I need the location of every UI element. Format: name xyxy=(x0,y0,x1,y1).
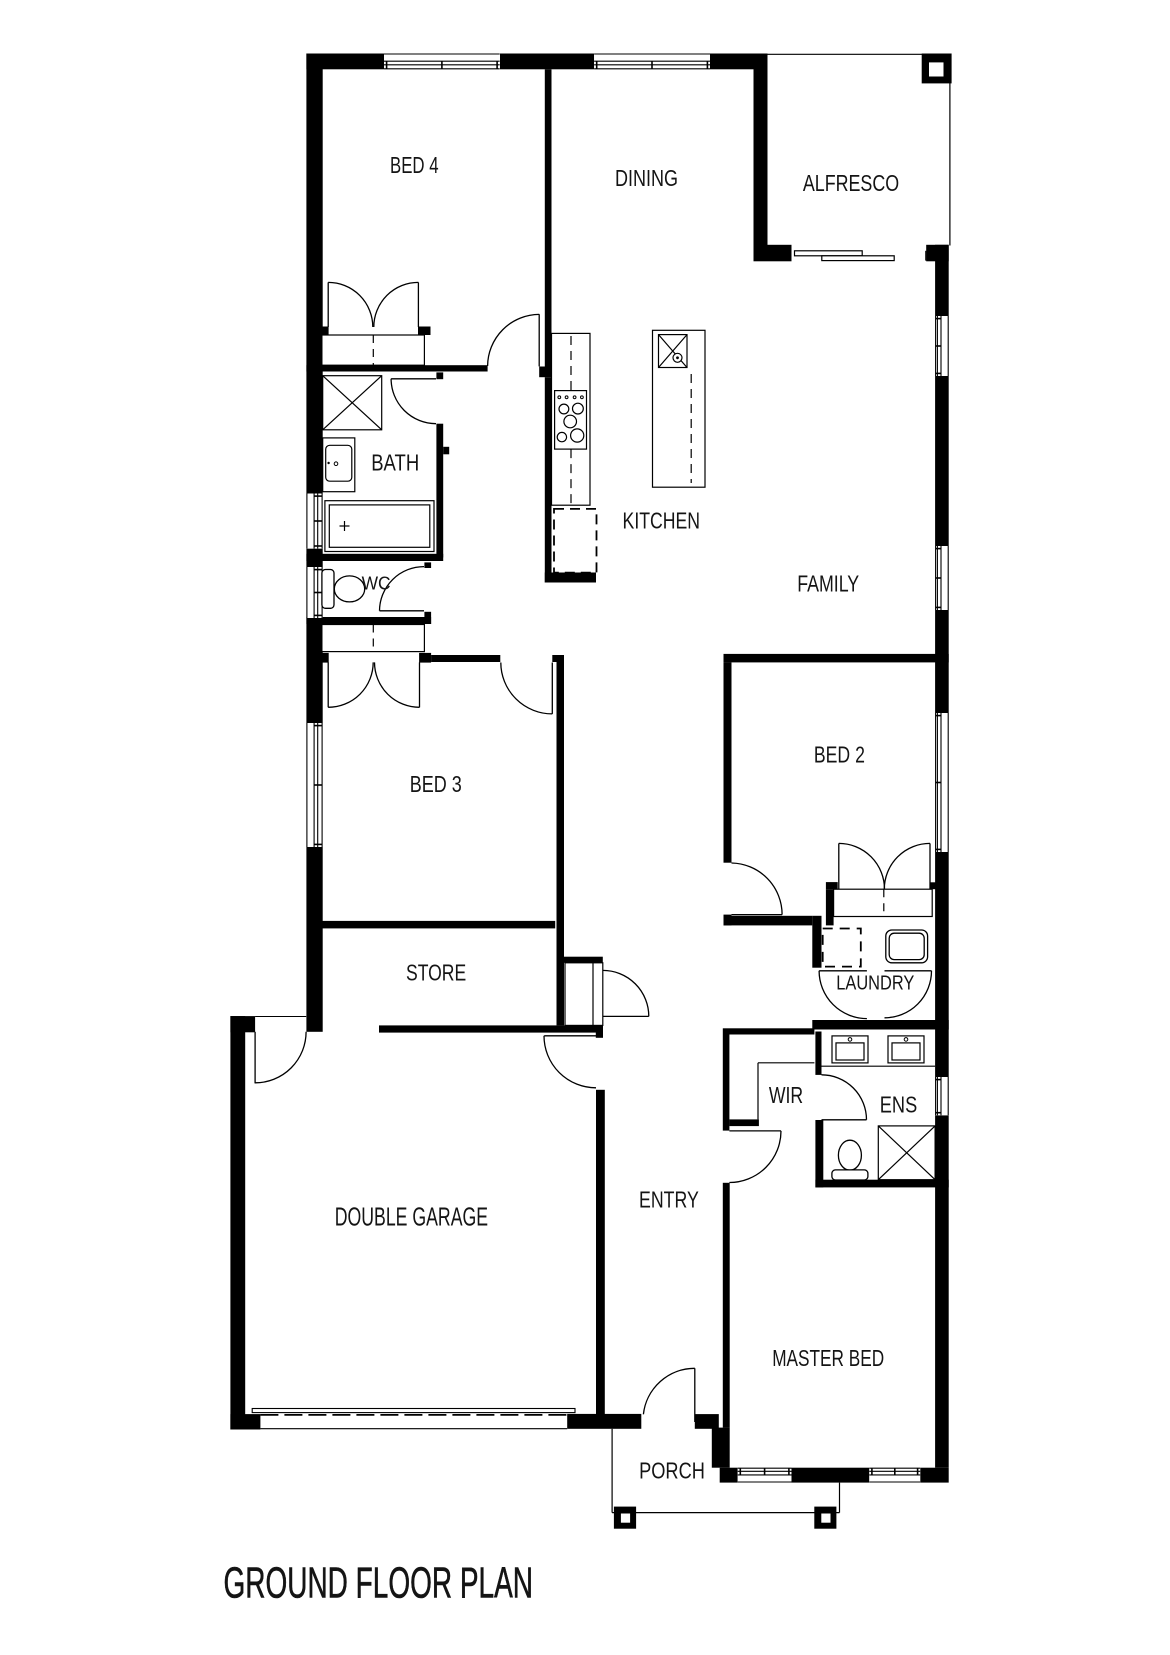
svg-text:FAMILY: FAMILY xyxy=(797,571,859,597)
svg-text:DINING: DINING xyxy=(615,165,678,191)
svg-text:BED 4: BED 4 xyxy=(390,152,439,178)
svg-text:MASTER BED: MASTER BED xyxy=(772,1345,884,1371)
svg-text:WC: WC xyxy=(362,572,391,593)
svg-text:ENS: ENS xyxy=(880,1092,917,1118)
svg-text:LAUNDRY: LAUNDRY xyxy=(836,973,914,995)
svg-text:GROUND FLOOR PLAN: GROUND FLOOR PLAN xyxy=(224,1560,534,1608)
svg-text:WIR: WIR xyxy=(769,1082,803,1108)
svg-text:ENTRY: ENTRY xyxy=(639,1187,699,1213)
svg-text:BED 2: BED 2 xyxy=(814,741,865,767)
svg-text:KITCHEN: KITCHEN xyxy=(623,507,701,533)
svg-text:STORE: STORE xyxy=(406,960,466,986)
svg-text:ALFRESCO: ALFRESCO xyxy=(803,170,899,196)
svg-text:DOUBLE GARAGE: DOUBLE GARAGE xyxy=(335,1202,488,1232)
svg-text:BATH: BATH xyxy=(371,449,419,475)
svg-text:PORCH: PORCH xyxy=(639,1458,705,1484)
svg-text:BED 3: BED 3 xyxy=(410,771,462,797)
